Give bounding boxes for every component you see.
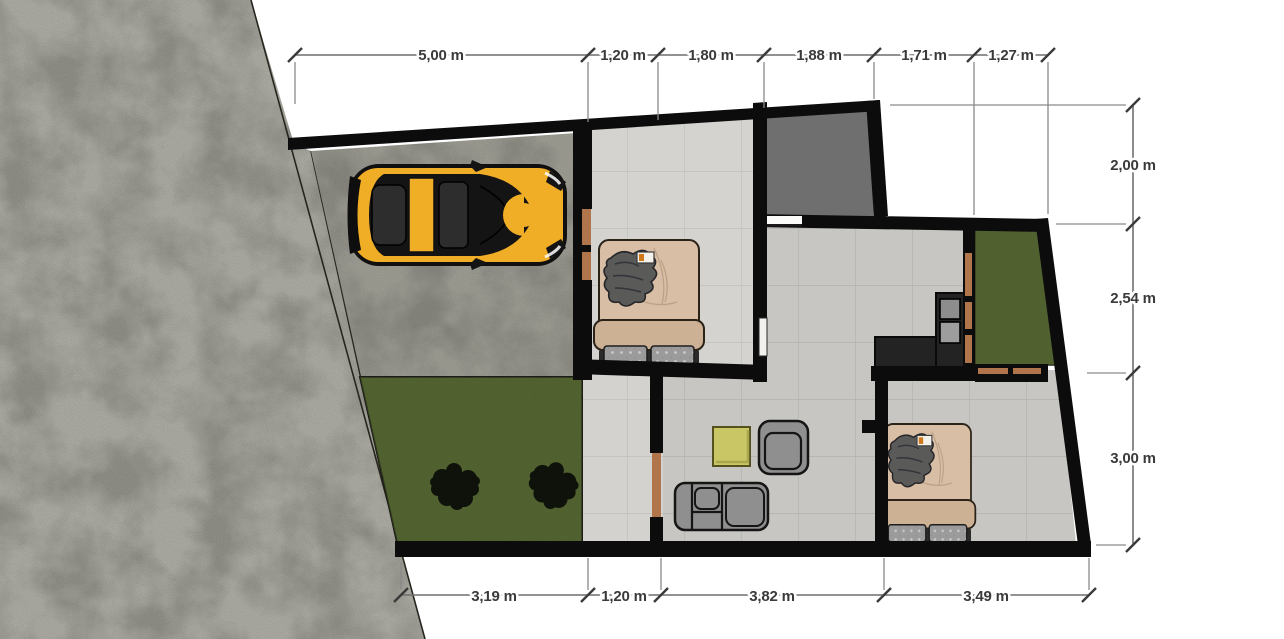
floor-plan-canvas: 5,00 m 1,20 m 1,80 m 1,88 m 1,71 m 1,27 … <box>0 0 1284 639</box>
dim-label-bottom-3: 3,49 m <box>963 588 1009 605</box>
dark-room-floor <box>765 104 874 218</box>
wall-living-bedroom2 <box>875 374 888 543</box>
dim-label-top-3: 1,88 m <box>796 47 842 64</box>
courtyard-window-bottom <box>978 368 1008 374</box>
window-mullion <box>965 329 972 335</box>
wall-darkroom-left <box>753 102 767 222</box>
window-mullion <box>965 296 972 302</box>
counter-run <box>875 337 939 368</box>
bed-1 <box>594 240 704 365</box>
wall-entry-lower <box>650 517 663 543</box>
coffee-table <box>713 427 750 466</box>
dim-label-right-2: 3,00 m <box>1110 450 1156 467</box>
bedroom1-door-leaf <box>759 318 767 356</box>
darkroom-door-sill <box>767 224 802 227</box>
cabinet-door-top <box>940 299 960 319</box>
wall-bedroom1-right-upper <box>753 222 767 318</box>
car-targa-bar <box>409 178 434 252</box>
yellow-car <box>348 160 568 270</box>
dim-label-right-0: 2,00 m <box>1110 157 1156 174</box>
wall-bedroom1-door-jamb <box>753 317 759 358</box>
wall-bedroom2-jamb <box>862 420 875 433</box>
wall-entry-upper <box>650 374 663 453</box>
dim-label-top-5: 1,27 m <box>988 47 1034 64</box>
wall-carport-bedroom1-upper <box>573 129 592 209</box>
dim-label-right-1: 2,54 m <box>1110 290 1156 307</box>
cabinet-door-bottom <box>940 322 960 343</box>
wall-carport-door-jamb <box>573 206 582 282</box>
car-rear-window <box>372 185 406 245</box>
wall-bottom <box>395 541 1091 557</box>
carport-door-leaf <box>582 252 591 280</box>
courtyard-window-left <box>965 253 972 363</box>
dim-label-top-4: 1,71 m <box>901 47 947 64</box>
dim-label-top-0: 5,00 m <box>418 47 464 64</box>
wall-kitchen-bedroom2 <box>871 366 975 381</box>
dim-label-top-2: 1,80 m <box>688 47 734 64</box>
darkroom-door-opening <box>767 216 802 224</box>
courtyard-window-bottom <box>1013 368 1041 374</box>
dim-label-top-1: 1,20 m <box>600 47 646 64</box>
dim-label-bottom-2: 3,82 m <box>749 588 795 605</box>
dimensions-bottom: 3,19 m 1,20 m 3,82 m 3,49 m <box>394 558 1096 605</box>
carport-door-leaf <box>582 209 591 245</box>
car-mid-glass <box>439 182 468 248</box>
bed-2 <box>880 424 976 543</box>
dim-label-bottom-0: 3,19 m <box>471 588 517 605</box>
floor-plan-page: 5,00 m 1,20 m 1,80 m 1,88 m 1,71 m 1,27 … <box>0 0 1284 639</box>
dim-label-bottom-1: 1,20 m <box>601 588 647 605</box>
carport-door-divider <box>582 245 591 252</box>
entry-door-leaf <box>652 453 661 517</box>
